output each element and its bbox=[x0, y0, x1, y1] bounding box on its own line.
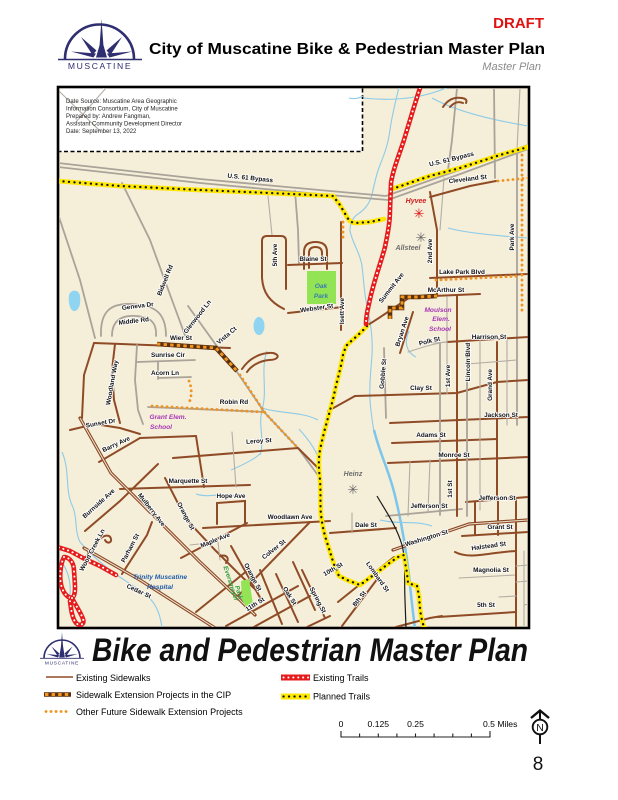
svg-text:MUSCATINE: MUSCATINE bbox=[68, 61, 132, 71]
svg-text:Grant Elem.: Grant Elem. bbox=[149, 414, 186, 421]
svg-text:Date: September 13, 2022: Date: September 13, 2022 bbox=[66, 129, 137, 135]
svg-text:Grand Ave: Grand Ave bbox=[487, 369, 494, 401]
svg-text:Marquette St: Marquette St bbox=[169, 478, 209, 485]
svg-text:Existing Sidewalks: Existing Sidewalks bbox=[76, 673, 151, 683]
svg-text:✳: ✳ bbox=[348, 482, 359, 497]
svg-text:Clay St: Clay St bbox=[410, 385, 433, 392]
svg-text:Master Plan: Master Plan bbox=[482, 61, 541, 73]
svg-text:Grant St: Grant St bbox=[487, 524, 513, 531]
svg-text:Hope Ave: Hope Ave bbox=[216, 493, 245, 500]
svg-text:Dale St: Dale St bbox=[355, 522, 378, 529]
svg-text:Elem.: Elem. bbox=[432, 316, 450, 323]
svg-text:McArthur St: McArthur St bbox=[428, 287, 465, 294]
svg-text:Woodlawn Ave: Woodlawn Ave bbox=[268, 514, 313, 521]
svg-text:2nd Ave: 2nd Ave bbox=[427, 238, 434, 263]
svg-text:Hospital: Hospital bbox=[147, 584, 173, 591]
svg-text:8: 8 bbox=[533, 754, 544, 775]
svg-text:1st Ave: 1st Ave bbox=[445, 364, 452, 387]
svg-text:Trinity Muscatine: Trinity Muscatine bbox=[133, 574, 187, 581]
svg-text:Information Consortium, City o: Information Consortium, City of Muscatin… bbox=[66, 107, 178, 113]
svg-text:Monroe St: Monroe St bbox=[438, 452, 470, 459]
svg-text:Jefferson St: Jefferson St bbox=[479, 495, 517, 502]
svg-text:0.125: 0.125 bbox=[368, 719, 390, 729]
svg-text:City of Muscatine Bike & Pedes: City of Muscatine Bike & Pedestrian Mast… bbox=[149, 41, 545, 58]
svg-text:Park Ave: Park Ave bbox=[509, 223, 516, 250]
svg-text:Heinz: Heinz bbox=[344, 471, 363, 478]
svg-text:5th Ave: 5th Ave bbox=[272, 243, 279, 266]
svg-text:Blaine St: Blaine St bbox=[299, 256, 327, 263]
svg-text:Sidewalk Extension Projects in: Sidewalk Extension Projects in the CIP bbox=[76, 690, 231, 700]
svg-text:Oak: Oak bbox=[315, 283, 328, 290]
svg-text:Allsteel: Allsteel bbox=[395, 245, 422, 252]
svg-text:Hyvee: Hyvee bbox=[406, 198, 427, 205]
svg-text:Assistant Community Developmen: Assistant Community Development Director bbox=[66, 122, 182, 128]
svg-text:Wier St: Wier St bbox=[170, 335, 193, 342]
svg-text:Moulson: Moulson bbox=[424, 307, 451, 314]
svg-text:N: N bbox=[536, 722, 544, 734]
svg-text:Robin Rd: Robin Rd bbox=[220, 399, 248, 406]
svg-text:✳: ✳ bbox=[416, 230, 427, 245]
svg-text:Prepared by: Andrew Fangman,: Prepared by: Andrew Fangman, bbox=[66, 114, 151, 120]
svg-text:0.25: 0.25 bbox=[407, 719, 424, 729]
svg-text:Bike and Pedestrian Master Pla: Bike and Pedestrian Master Plan bbox=[92, 632, 528, 668]
svg-text:Sunrise Cir: Sunrise Cir bbox=[151, 352, 186, 359]
svg-text:Park: Park bbox=[314, 293, 329, 300]
svg-text:✳: ✳ bbox=[414, 206, 425, 221]
svg-text:0.5 Miles: 0.5 Miles bbox=[483, 719, 517, 729]
svg-text:Jefferson St: Jefferson St bbox=[411, 503, 449, 510]
svg-text:MUSCATINE: MUSCATINE bbox=[45, 661, 79, 667]
svg-text:Isett Ave: Isett Ave bbox=[339, 297, 346, 324]
svg-text:Date Source: Muscatine Area Ge: Date Source: Muscatine Area Geographic bbox=[66, 99, 177, 105]
svg-text:1st St: 1st St bbox=[447, 479, 454, 497]
svg-text:School: School bbox=[150, 424, 172, 431]
svg-text:Adams St: Adams St bbox=[416, 432, 446, 439]
svg-text:0: 0 bbox=[339, 719, 344, 729]
svg-text:Other Future Sidewalk Extensio: Other Future Sidewalk Extension Projects bbox=[76, 707, 243, 717]
svg-text:Lincoln Blvd: Lincoln Blvd bbox=[465, 343, 472, 381]
svg-text:Existing Trails: Existing Trails bbox=[313, 673, 369, 683]
svg-text:Lake Park Blvd: Lake Park Blvd bbox=[439, 269, 485, 276]
svg-text:School: School bbox=[429, 326, 451, 333]
svg-text:5th St: 5th St bbox=[477, 602, 496, 609]
svg-text:Harrison St: Harrison St bbox=[472, 334, 507, 341]
svg-text:Magnolia St: Magnolia St bbox=[473, 567, 510, 574]
svg-text:Acorn Ln: Acorn Ln bbox=[151, 370, 179, 377]
svg-text:DRAFT: DRAFT bbox=[493, 15, 544, 32]
svg-text:Planned Trails: Planned Trails bbox=[313, 692, 371, 702]
svg-text:Jackson St: Jackson St bbox=[484, 412, 519, 419]
